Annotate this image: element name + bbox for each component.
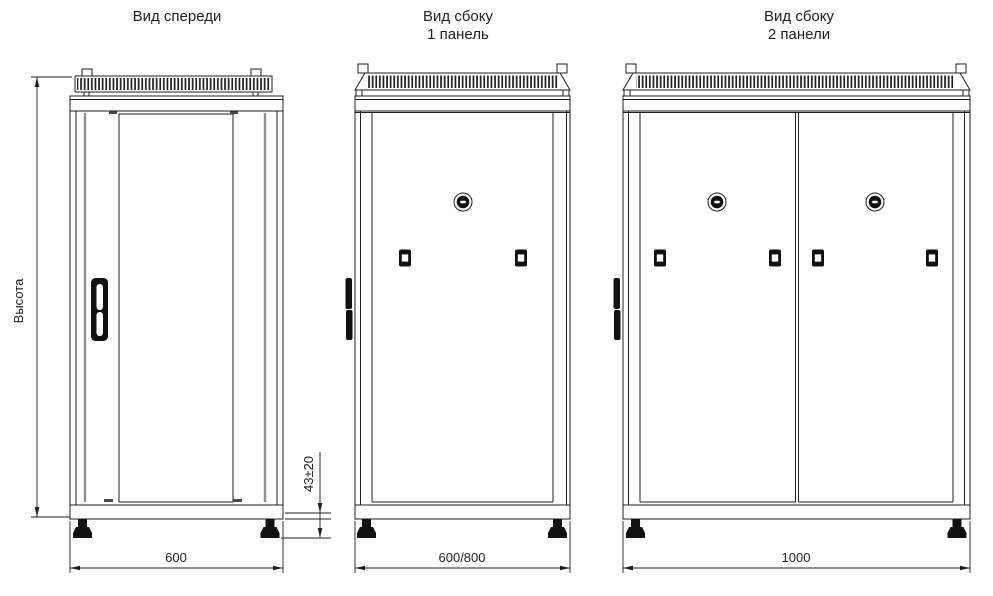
front-plinth — [70, 505, 283, 519]
side2-plinth — [623, 505, 970, 519]
side1-panel — [372, 113, 553, 503]
front-door — [104, 112, 242, 503]
side1-view — [346, 64, 571, 538]
side2-panel-left — [640, 113, 796, 503]
side1-leveling-feet — [357, 519, 567, 538]
side2-top-band — [623, 96, 970, 111]
side1-view-title-line1: Вид сбоку — [423, 8, 493, 25]
side1-width-dimension: 600/800 — [355, 521, 570, 573]
side1-top-band — [355, 96, 570, 111]
front-door-handle — [91, 278, 108, 341]
side1-width-dimension-label: 600/800 — [439, 550, 486, 565]
foot-height-dimension-label: 43±20 — [301, 456, 316, 492]
front-view — [70, 69, 283, 538]
side1-vent-grille — [355, 64, 570, 96]
side2-latch-4 — [926, 250, 938, 267]
height-dimension-label: Высота — [11, 278, 26, 323]
side2-hinge — [614, 278, 621, 340]
side1-latch-left — [399, 250, 411, 267]
side2-lock-left — [708, 193, 726, 211]
side2-latch-3 — [812, 250, 824, 267]
side2-view-title-line2: 2 панели — [768, 26, 830, 43]
side1-lock — [454, 193, 472, 211]
front-width-dimension-label: 600 — [165, 550, 187, 565]
side1-body-frame — [355, 111, 570, 505]
side2-view — [614, 64, 971, 538]
side1-latch-right — [515, 250, 527, 267]
side2-lock-right — [866, 193, 884, 211]
front-width-dimension: 600 — [70, 521, 283, 573]
side2-vent-grille — [623, 64, 970, 96]
side2-body-frame — [623, 111, 970, 505]
foot-height-dimension: 43±20 — [281, 452, 331, 538]
technical-drawing-canvas: Вид спереди Вид сбоку 1 панель Вид сбоку… — [0, 0, 993, 596]
side2-latch-1 — [654, 250, 666, 267]
side1-hinge — [346, 278, 353, 340]
front-top-band — [70, 96, 283, 111]
side2-panel-right — [799, 113, 954, 503]
height-dimension: Высота — [11, 77, 72, 517]
front-leveling-feet — [73, 519, 280, 538]
front-vent-grille — [75, 69, 272, 96]
side2-view-title-line1: Вид сбоку — [764, 8, 834, 25]
cabinet-drawing: Вид спереди Вид сбоку 1 панель Вид сбоку… — [0, 0, 993, 596]
side2-width-dimension-label: 1000 — [782, 550, 811, 565]
side2-latch-2 — [769, 250, 781, 267]
front-view-title: Вид спереди — [133, 8, 222, 25]
side2-width-dimension: 1000 — [623, 521, 970, 573]
side2-leveling-feet — [626, 519, 967, 538]
side1-plinth — [355, 505, 570, 519]
side1-view-title-line2: 1 панель — [427, 26, 489, 43]
